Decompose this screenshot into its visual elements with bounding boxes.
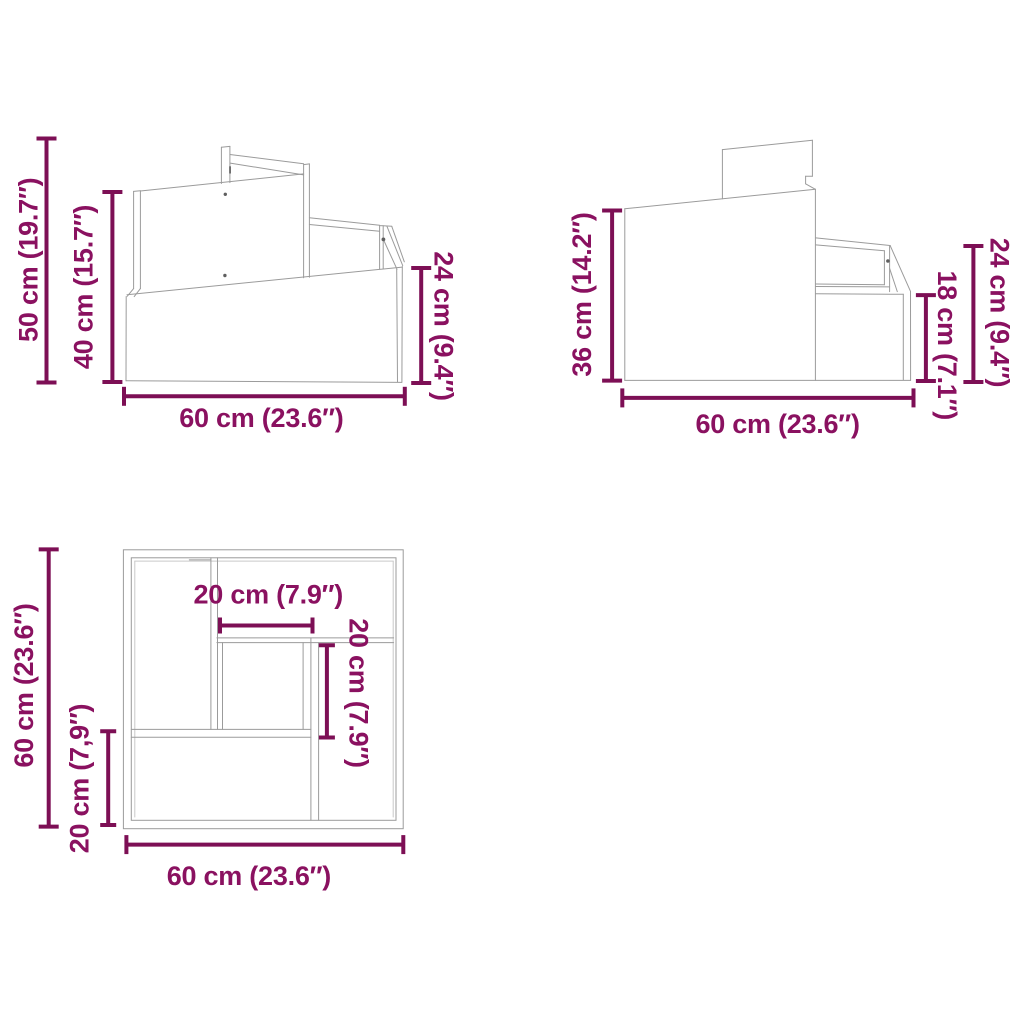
svg-text:20 cm (7,9″): 20 cm (7,9″) [64, 704, 94, 854]
svg-text:60 cm (23.6″): 60 cm (23.6″) [167, 861, 331, 891]
svg-text:60 cm (23.6″): 60 cm (23.6″) [695, 409, 859, 439]
svg-text:40 cm (15.7″): 40 cm (15.7″) [68, 205, 98, 369]
svg-text:60 cm (23.6″): 60 cm (23.6″) [9, 603, 39, 767]
svg-text:18 cm (7.1″): 18 cm (7.1″) [932, 270, 962, 420]
svg-text:24 cm (9.4″): 24 cm (9.4″) [429, 251, 459, 401]
svg-text:24 cm (9.4″): 24 cm (9.4″) [985, 238, 1015, 388]
svg-text:20 cm (7.9″): 20 cm (7.9″) [343, 618, 373, 768]
svg-text:50 cm (19.7″): 50 cm (19.7″) [14, 178, 44, 342]
svg-text:20 cm (7.9″): 20 cm (7.9″) [194, 580, 344, 610]
svg-text:36 cm (14.2″): 36 cm (14.2″) [567, 212, 597, 376]
svg-text:60 cm (23.6″): 60 cm (23.6″) [179, 403, 343, 433]
